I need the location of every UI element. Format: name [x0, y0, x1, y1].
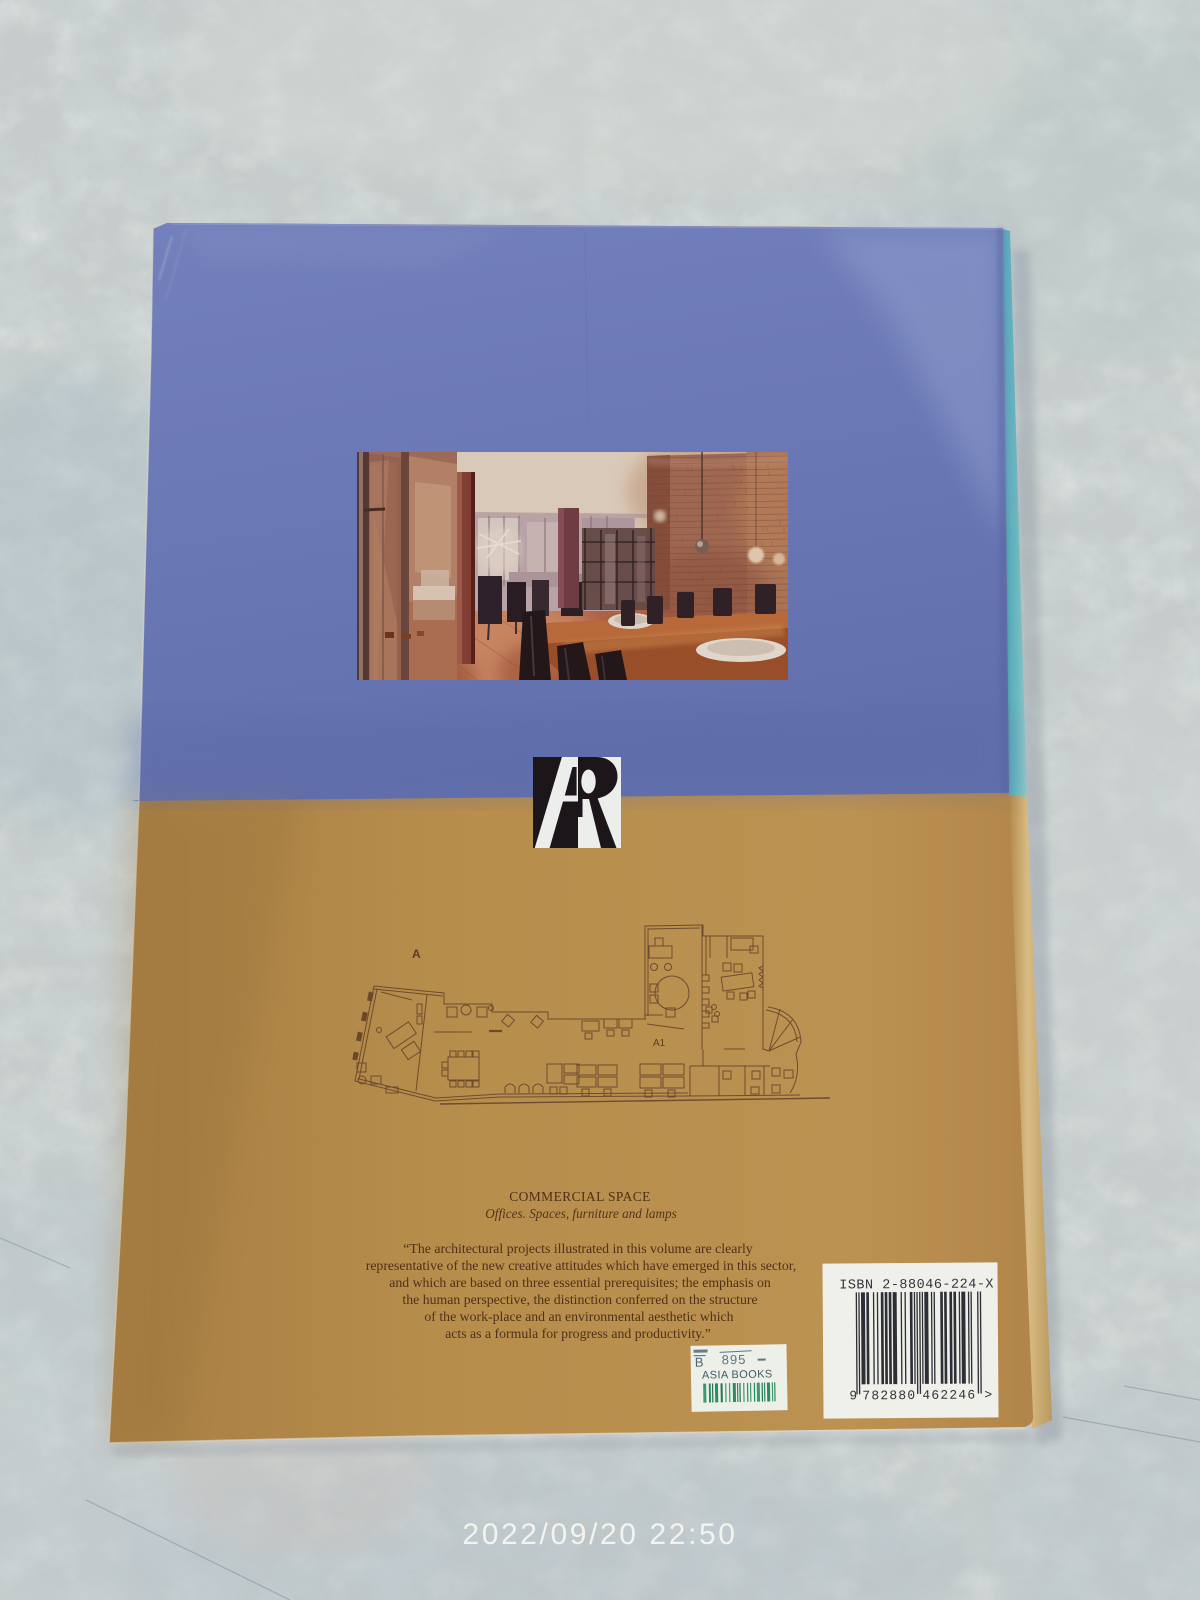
svg-text:“The architectural projects il: “The architectural projects illustrated …	[403, 1241, 752, 1256]
svg-text:782880: 782880	[862, 1388, 916, 1403]
svg-text:>: >	[984, 1387, 992, 1402]
svg-text:9: 9	[849, 1388, 857, 1403]
svg-text:COMMERCIAL SPACE: COMMERCIAL SPACE	[509, 1189, 651, 1204]
svg-text:895: 895	[722, 1352, 747, 1367]
svg-text:the human perspective, the dis: the human perspective, the distinction c…	[402, 1292, 757, 1307]
svg-text:of the work-place and an envir: of the work-place and an environmental a…	[424, 1309, 733, 1324]
svg-text:ISBN 2-88046-224-X: ISBN 2-88046-224-X	[839, 1277, 994, 1293]
svg-text:and which are based on three e: and which are based on three essential p…	[389, 1275, 771, 1290]
svg-text:2022/09/20 22:50: 2022/09/20 22:50	[462, 1518, 737, 1551]
svg-text:representative of the new crea: representative of the new creative attit…	[366, 1258, 797, 1273]
svg-text:ASIA BOOKS: ASIA BOOKS	[702, 1368, 773, 1381]
svg-text:B: B	[695, 1355, 704, 1370]
svg-text:A: A	[412, 947, 421, 961]
svg-text:acts as a formula for progress: acts as a formula for progress and produ…	[445, 1326, 711, 1341]
svg-text:Offices. Spaces, furniture and: Offices. Spaces, furniture and lamps	[485, 1206, 676, 1221]
svg-text:462246: 462246	[922, 1388, 976, 1403]
svg-text:A1: A1	[653, 1038, 666, 1049]
